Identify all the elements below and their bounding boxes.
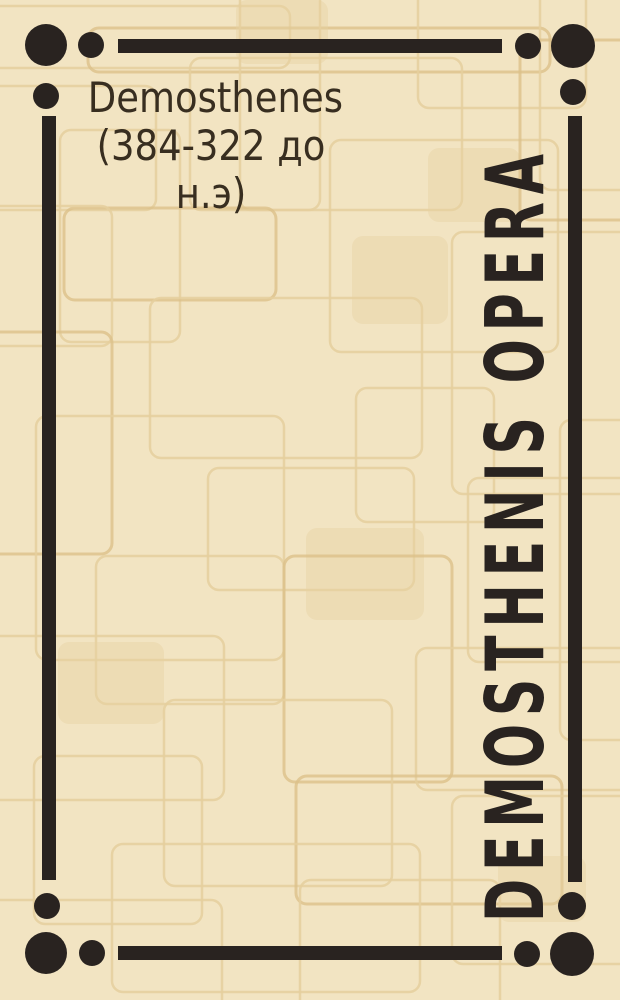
corner-dot-medium-tl (33, 83, 59, 109)
book-cover: Demosthenes (384-322 до н.э) DEMOSTHENIS… (0, 0, 620, 1000)
corner-dot-small-tl (78, 32, 104, 58)
frame-bottom-bar (118, 946, 502, 960)
author-heading: Demosthenes (384-322 до н.э) (88, 74, 334, 218)
author-line-2: (384-322 до (88, 122, 334, 170)
corner-dot-large-tl (25, 24, 67, 66)
corner-dot-large-tr (551, 24, 595, 68)
corner-dot-large-bl (25, 932, 67, 974)
corner-dot-large-br (550, 932, 594, 976)
author-line-1: Demosthenes (88, 74, 334, 122)
corner-dot-medium-bl (34, 893, 60, 919)
corner-dot-small-bl (79, 940, 105, 966)
corner-dot-small-tr (515, 33, 541, 59)
author-line-3: н.э) (88, 170, 334, 218)
frame-top-bar (118, 39, 502, 53)
frame-right-bar (568, 116, 582, 882)
corner-dot-small-br (514, 941, 540, 967)
frame-left-bar (42, 116, 56, 880)
corner-dot-medium-tr (560, 79, 586, 105)
corner-dot-medium-br (558, 892, 586, 920)
